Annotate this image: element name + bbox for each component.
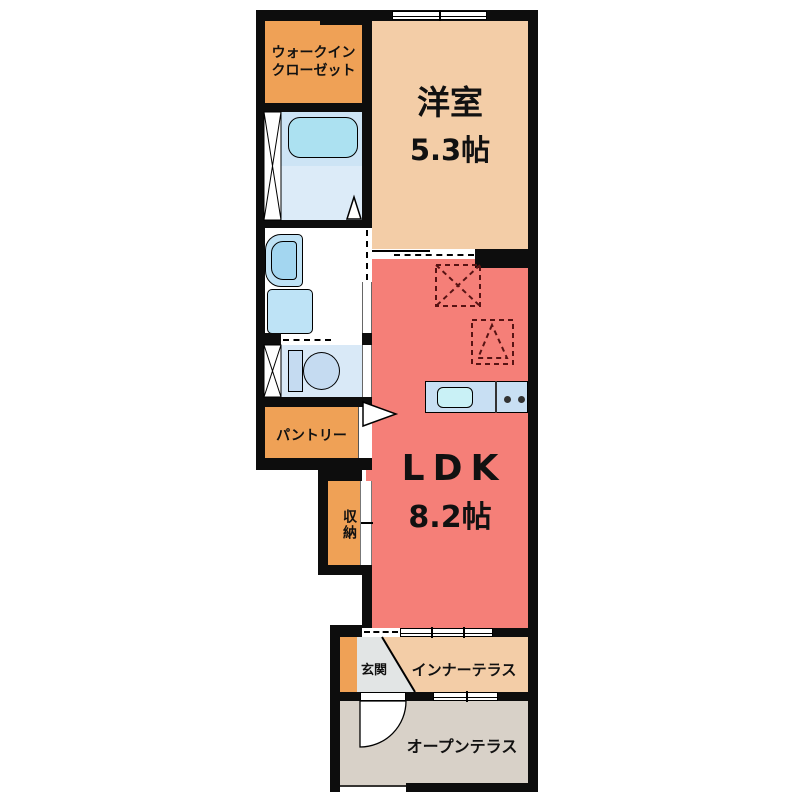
wall-washroom-east <box>362 112 372 228</box>
ldk-size: 8.2帖 <box>372 498 528 537</box>
wall-pantry-top <box>256 397 372 407</box>
ldk-label: LDK <box>372 446 528 493</box>
walk-in-closet-label: ウォークイン クローゼット <box>265 44 362 80</box>
wall-bath-washroom <box>256 220 362 228</box>
western-room-size: 5.3帖 <box>372 132 528 170</box>
wall-pantry-bottom <box>256 458 372 470</box>
wall-toilet-top-left <box>256 333 281 345</box>
toilet-bowl <box>303 352 340 390</box>
wall-entrance-bottom-1 <box>330 692 360 701</box>
wall-ldk-bottom-left <box>330 625 362 637</box>
kitchen-sink <box>437 387 473 408</box>
open-terrace-label: オープンテラス <box>395 737 529 758</box>
stove-burner-left <box>504 396 511 403</box>
wall-closet-right <box>362 20 372 112</box>
wall-right <box>528 10 538 792</box>
wall-entrance-bottom-3 <box>498 692 528 701</box>
wall-entrance-bottom-2 <box>406 692 433 701</box>
stove-burner-right <box>518 396 525 403</box>
wall-storage-bottom <box>318 565 372 575</box>
washing-machine <box>267 289 313 334</box>
wall-storage-left <box>318 470 328 575</box>
wall-seg-mid <box>362 333 372 345</box>
storage-label: 収納 <box>330 492 358 558</box>
door-storage <box>360 481 372 565</box>
partition-washroom-lower <box>362 282 372 333</box>
window-inner-terrace <box>433 692 498 701</box>
wall-storage-top <box>318 470 362 481</box>
room-bathroom-lower <box>281 166 362 220</box>
wall-terrace-bottom <box>406 783 537 792</box>
window-western-top <box>392 11 487 20</box>
bathtub <box>288 117 358 158</box>
door-toilet-opening <box>281 335 362 345</box>
pipe-shaft-lower <box>264 345 281 397</box>
wall-closet-bottom <box>256 103 362 112</box>
toilet-tank <box>288 350 303 392</box>
opening-pantry <box>358 407 372 458</box>
pipe-shaft-upper <box>264 112 281 220</box>
door-washroom-sliding <box>362 228 372 282</box>
door-genkan-ldk <box>362 628 400 637</box>
inner-terrace-label: インナーテラス <box>405 661 523 681</box>
entrance-door-leaf <box>360 692 406 701</box>
counter-divider <box>495 381 497 413</box>
washbasin-bowl <box>271 241 297 280</box>
entrance-label: 玄関 <box>352 663 396 680</box>
wall-western-ldk-right <box>475 249 528 268</box>
floorplan: ウォークイン クローゼット 洋室 5.3帖 LDK 8.2帖 パントリー 収納 … <box>0 0 800 800</box>
wall-entrance-left <box>330 637 340 792</box>
door-western-ldk-sliding <box>372 249 475 259</box>
window-ldk-bottom <box>400 628 493 637</box>
room-ldk <box>366 259 528 628</box>
wall-ldk-bottom-right <box>493 628 528 637</box>
wall-ldk-left-lower <box>362 575 372 628</box>
western-room-label: 洋室 <box>372 82 528 125</box>
pantry-label: パントリー <box>265 427 358 445</box>
partition-toilet-east <box>362 345 372 397</box>
